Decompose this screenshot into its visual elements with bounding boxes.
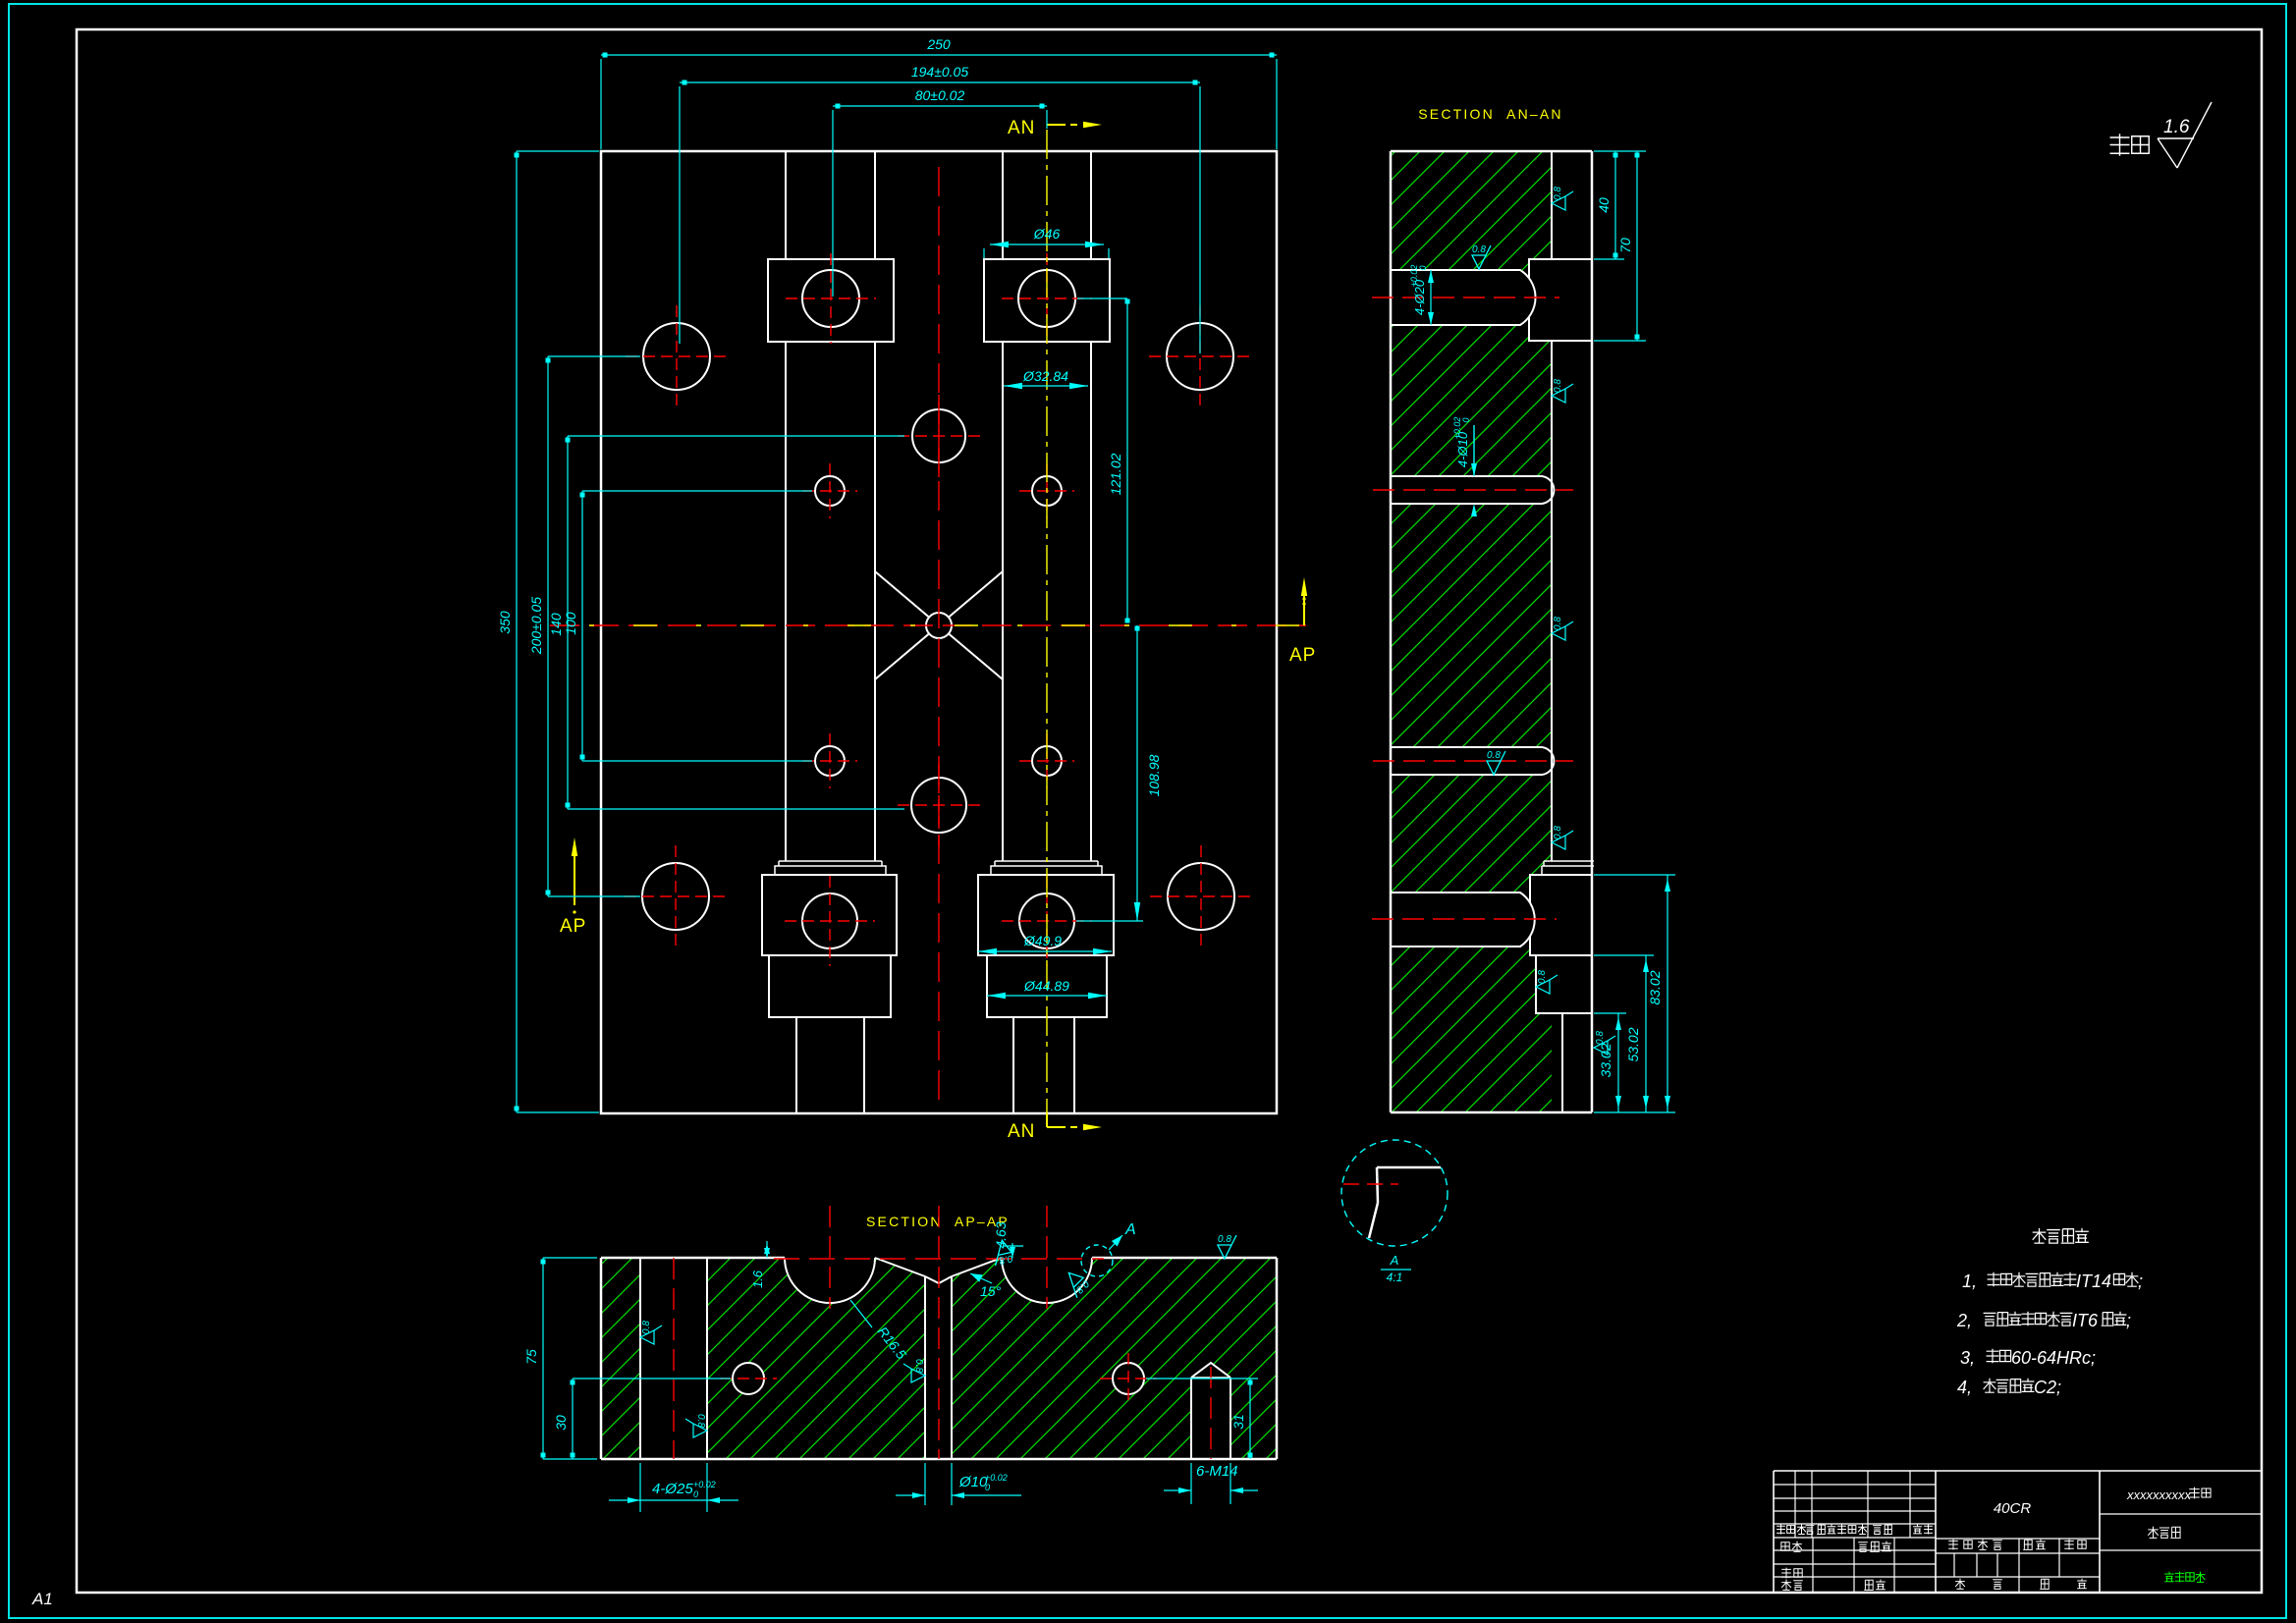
svg-text:1.6: 1.6 xyxy=(750,1270,765,1288)
svg-text:0.8: 0.8 xyxy=(1553,379,1563,393)
svg-text:+0.02: +0.02 xyxy=(693,1480,716,1489)
svg-text:0.8: 0.8 xyxy=(1553,826,1563,839)
svg-text:15°: 15° xyxy=(980,1283,1002,1299)
svg-text:140: 140 xyxy=(548,613,564,636)
svg-text:4,: 4, xyxy=(1957,1378,1972,1397)
svg-text:100: 100 xyxy=(563,612,578,635)
svg-text:IT14: IT14 xyxy=(2076,1271,2111,1291)
svg-text:31: 31 xyxy=(1230,1414,1246,1430)
svg-text:2,: 2, xyxy=(1956,1311,1972,1330)
svg-text:SECTION AN–AN: SECTION AN–AN xyxy=(1418,106,1563,122)
svg-text:0: 0 xyxy=(1461,417,1471,422)
svg-text:Ø46: Ø46 xyxy=(1033,226,1061,242)
svg-text:4:1: 4:1 xyxy=(1387,1271,1403,1284)
svg-text:0.8: 0.8 xyxy=(1553,187,1563,200)
svg-text:40: 40 xyxy=(1596,197,1612,213)
svg-text:Ø10: Ø10 xyxy=(958,1474,988,1490)
svg-text:3,: 3, xyxy=(1960,1348,1975,1368)
svg-text:0.8: 0.8 xyxy=(1595,1031,1606,1045)
svg-text:0.8: 0.8 xyxy=(1472,244,1486,255)
svg-text:30: 30 xyxy=(553,1415,569,1431)
svg-text:SECTION AP–AP: SECTION AP–AP xyxy=(866,1214,1010,1229)
svg-text:0.8: 0.8 xyxy=(695,1414,706,1428)
svg-text:AP: AP xyxy=(560,916,586,937)
svg-text:;: ; xyxy=(2126,1311,2131,1330)
svg-text:A: A xyxy=(1390,1253,1399,1268)
svg-text:AN: AN xyxy=(1008,1121,1035,1142)
svg-text:1,: 1, xyxy=(1962,1271,1977,1291)
svg-text:+0.02: +0.02 xyxy=(985,1473,1008,1483)
svg-text:AN: AN xyxy=(1008,118,1035,138)
svg-text:AP: AP xyxy=(1289,645,1316,666)
svg-text:C2;: C2; xyxy=(2034,1378,2061,1397)
svg-text:6-M14: 6-M14 xyxy=(1196,1463,1238,1480)
svg-text:0.8: 0.8 xyxy=(1553,617,1563,630)
svg-text:0.8: 0.8 xyxy=(1218,1234,1231,1245)
svg-text:33.02: 33.02 xyxy=(1598,1043,1613,1077)
svg-text:75: 75 xyxy=(523,1349,539,1365)
svg-text:IT6: IT6 xyxy=(2072,1311,2099,1330)
svg-text:0: 0 xyxy=(1418,265,1428,270)
svg-text:A1: A1 xyxy=(31,1590,53,1608)
svg-text:1.6: 1.6 xyxy=(2163,117,2190,137)
svg-text:0.8: 0.8 xyxy=(641,1321,652,1334)
svg-text:83.02: 83.02 xyxy=(1647,970,1663,1004)
svg-text:xxxxxxxxxx: xxxxxxxxxx xyxy=(2126,1488,2192,1502)
svg-text:53.02: 53.02 xyxy=(1625,1027,1641,1061)
svg-text:250: 250 xyxy=(926,36,951,52)
svg-text:4-Ø25: 4-Ø25 xyxy=(652,1481,693,1497)
svg-text:;: ; xyxy=(2138,1271,2143,1291)
svg-text:121.02: 121.02 xyxy=(1108,453,1123,495)
svg-text:0: 0 xyxy=(985,1483,990,1492)
svg-text:Ø44.89: Ø44.89 xyxy=(1023,978,1069,994)
svg-text:A: A xyxy=(1124,1221,1136,1238)
svg-text:194±0.05: 194±0.05 xyxy=(911,64,969,80)
svg-text:Ø49.9: Ø49.9 xyxy=(1023,933,1062,948)
svg-text:200±0.05: 200±0.05 xyxy=(528,597,544,656)
svg-text:350: 350 xyxy=(497,611,513,634)
svg-text:0.8: 0.8 xyxy=(1537,970,1548,984)
svg-text:70: 70 xyxy=(1617,238,1633,253)
svg-text:0.8: 0.8 xyxy=(913,1359,924,1373)
svg-text:60-64HRc;: 60-64HRc; xyxy=(2011,1348,2096,1368)
svg-text:Ø32.84: Ø32.84 xyxy=(1022,368,1068,384)
svg-text:0: 0 xyxy=(693,1489,698,1499)
svg-text:0.8: 0.8 xyxy=(1487,750,1501,761)
svg-text:108.98: 108.98 xyxy=(1146,754,1162,796)
svg-text:80±0.02: 80±0.02 xyxy=(915,87,965,103)
svg-text:40CR: 40CR xyxy=(1994,1500,2032,1517)
